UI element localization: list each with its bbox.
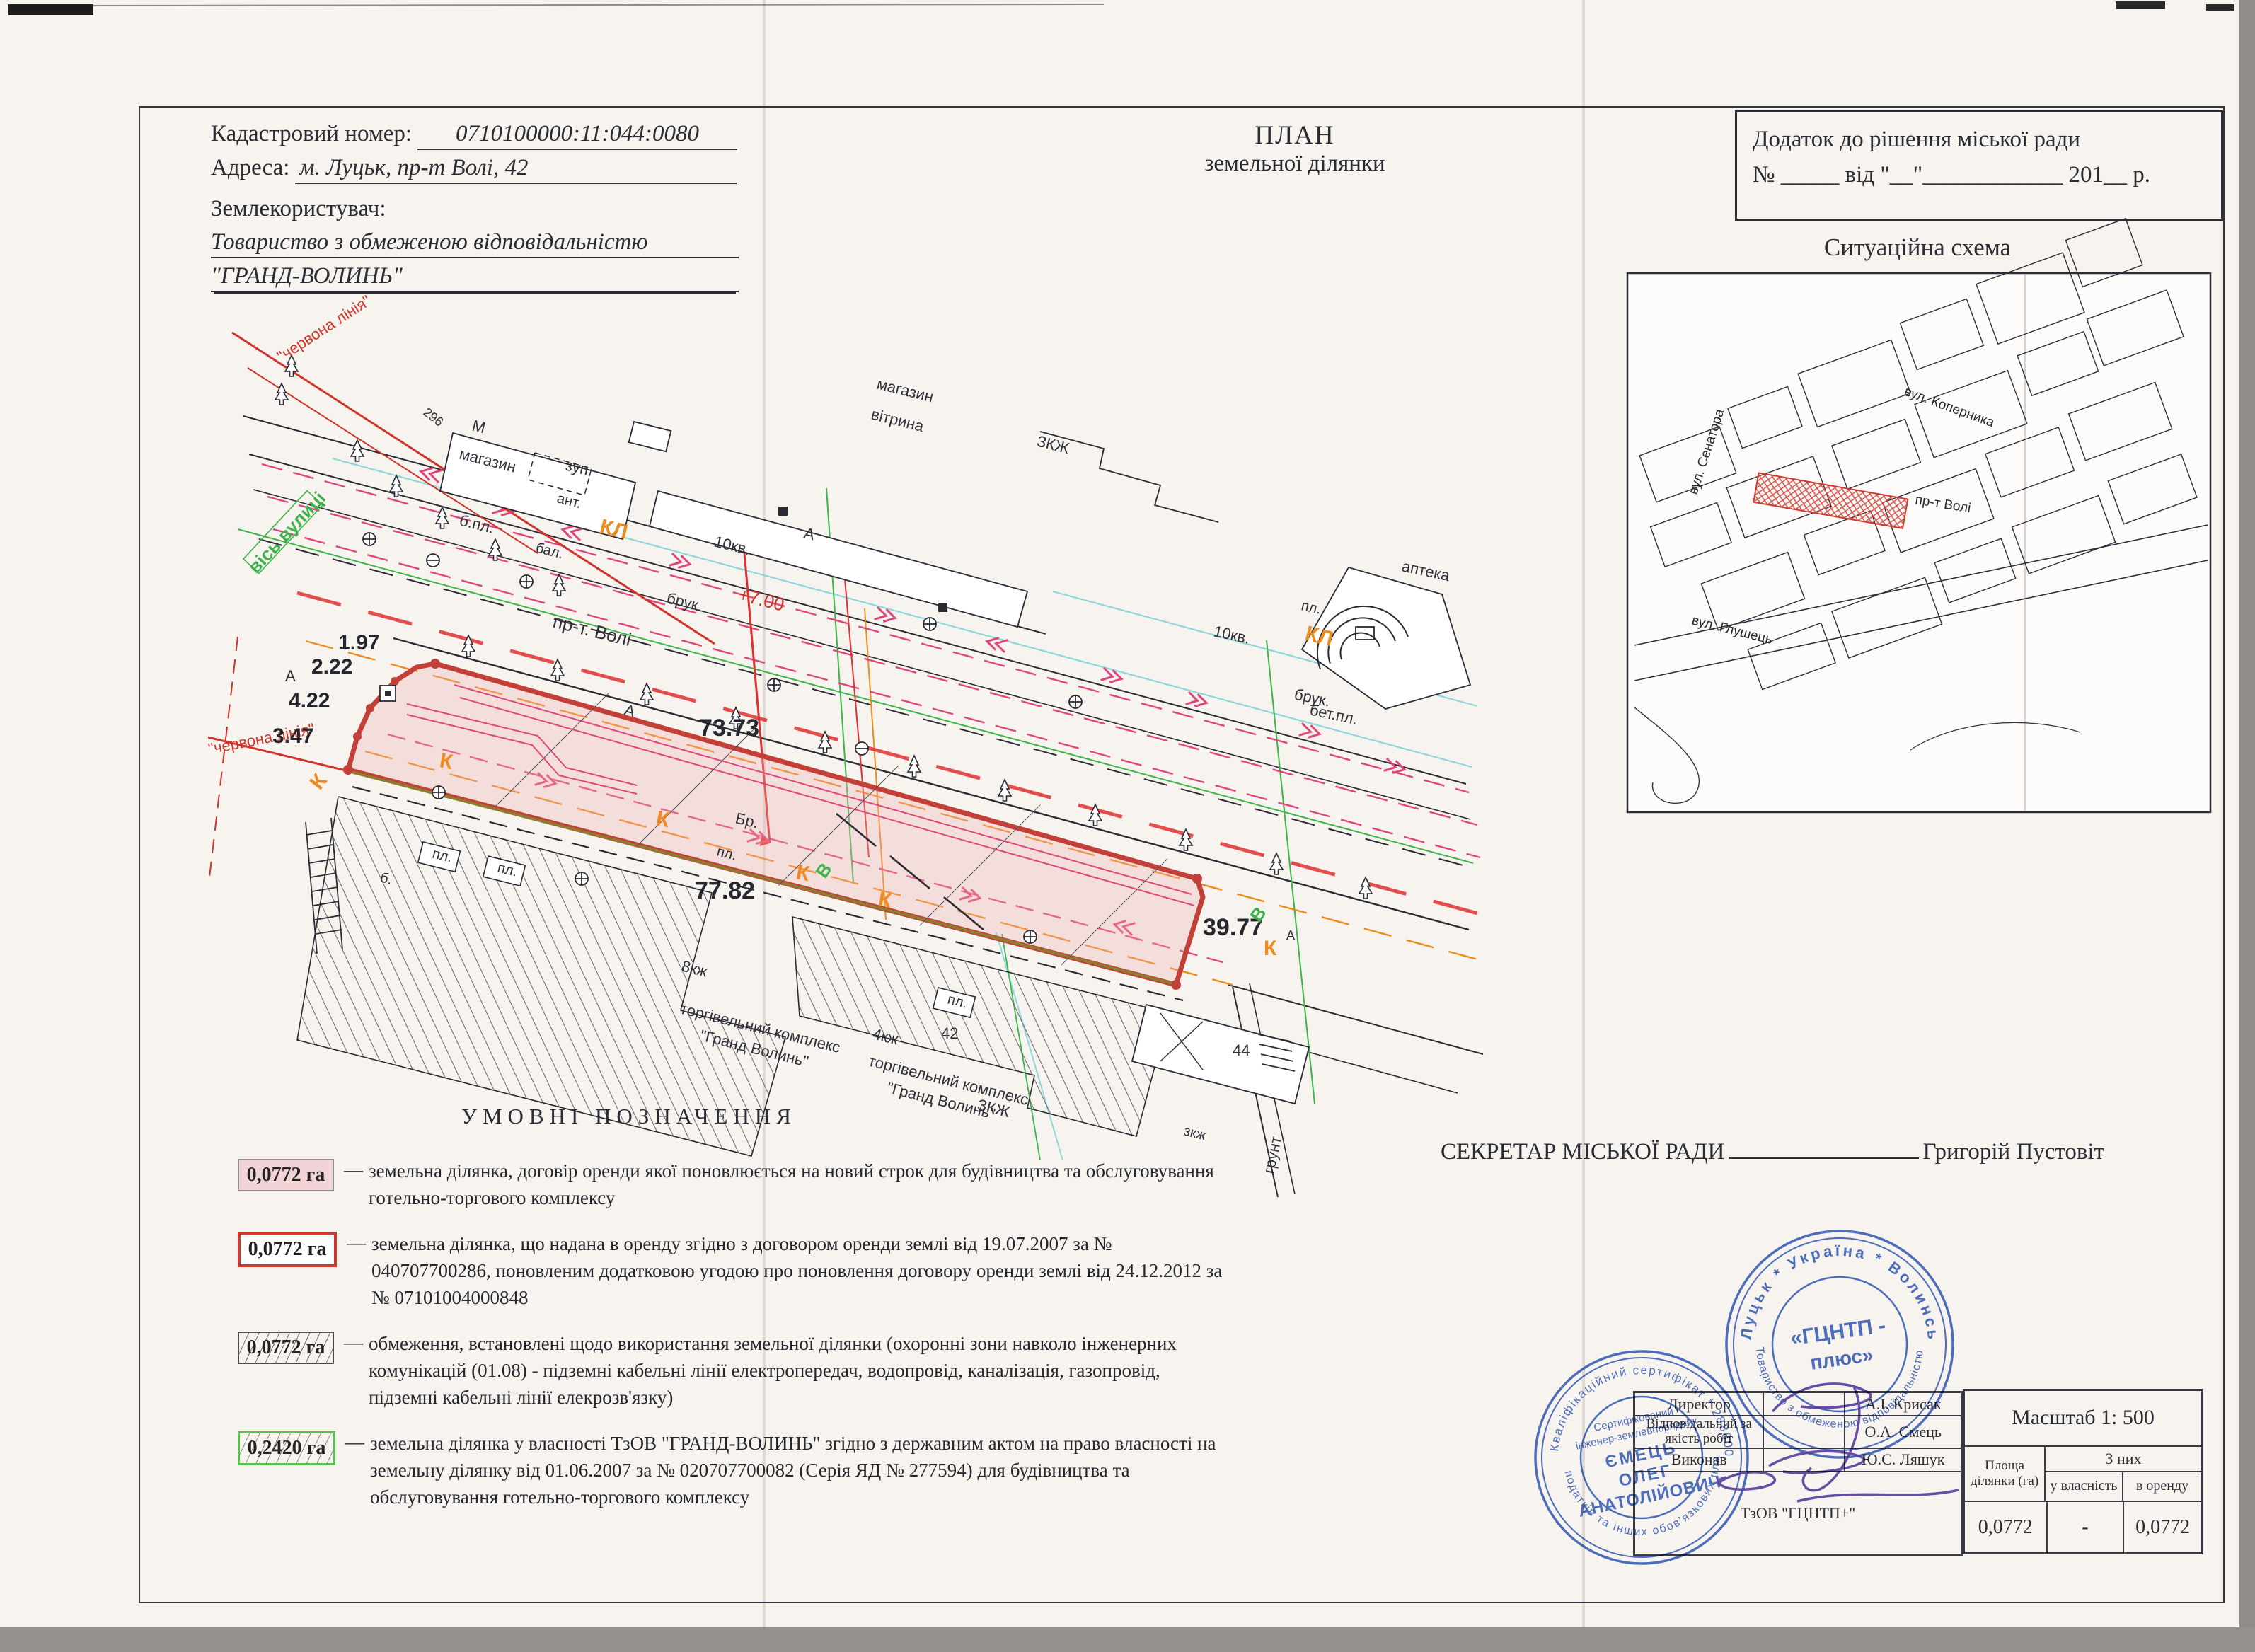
plan-label: ЗКЖ [1035, 432, 1072, 458]
plan-label: К [306, 769, 333, 794]
legend-entry: 0,0772 га — земельна ділянка, що надана … [238, 1230, 1271, 1312]
legend-dash: — [344, 1159, 363, 1181]
plan-label: А [1286, 928, 1295, 942]
exec-name: Ю.С. Ляшук [1845, 1448, 1961, 1472]
legend-entry: 0,0772 га — обмеження, встановлені щодо … [238, 1330, 1271, 1411]
landuser-line1: Товариство з обмеженою відповідальністю [211, 227, 739, 258]
legend-dash: — [345, 1431, 364, 1453]
plan-label: "червона лінія" [274, 291, 374, 365]
address-value: м. Луцьк, пр-т Волі, 42 [295, 153, 737, 184]
legend-text: обмеження, встановлені щодо використання… [369, 1330, 1225, 1411]
annex-box: Додаток до рішення міської ради № _____ … [1735, 110, 2223, 221]
plan-label: 10кв. [1212, 622, 1252, 647]
exec-signature-cell [1763, 1448, 1845, 1472]
plan-label: магазин [875, 375, 935, 406]
col-group-header: З них [2045, 1446, 2202, 1472]
plan-label: А [285, 667, 296, 685]
scale-value: Масштаб 1: 500 [1964, 1390, 2202, 1446]
legend-title: УМОВНІ ПОЗНАЧЕННЯ [461, 1104, 1271, 1129]
own-value: - [2047, 1501, 2124, 1553]
plan-label: вітрина [870, 405, 926, 436]
legend-entry: 0,0772 га — земельна ділянка, договір ор… [238, 1157, 1271, 1212]
scale-table: Масштаб 1: 500 Площа ділянки (га) З них … [1963, 1389, 2203, 1554]
signature-blank [1729, 1136, 1919, 1159]
plan-label: 42 [941, 1024, 958, 1042]
legend-swatch-green-hatched: 0,2420 га [238, 1431, 335, 1465]
legend: УМОВНІ ПОЗНАЧЕННЯ 0,0772 га — земельна д… [238, 1104, 1271, 1530]
dimension-label: 77.82 [695, 877, 755, 904]
plan-title: ПЛАН земельної ділянки [1132, 120, 1458, 177]
landuser-line2: "ГРАНД-ВОЛИНЬ" [211, 261, 739, 292]
plan-label: вісь вулиці [243, 487, 330, 577]
situation-map: вул. Коперника вул. Сенатора пр-т Волі в… [1607, 214, 2248, 812]
exec-signature-cell [1763, 1392, 1845, 1416]
plan-label: К [1264, 937, 1277, 960]
legend-text: земельна ділянка у власності ТзОВ "ГРАНД… [370, 1430, 1226, 1511]
exec-role: Відповідальний за якість робіт [1634, 1416, 1763, 1448]
dimension-label: 4.22 [289, 689, 330, 712]
legend-text: земельна ділянка, договір оренди якої по… [369, 1157, 1225, 1212]
area-value: 0,0772 [1964, 1501, 2047, 1553]
legend-swatch-red-border: 0,0772 га [238, 1232, 337, 1267]
plan-label: 44 [1233, 1041, 1250, 1059]
situation-title: Ситуаційна схема [1684, 233, 2151, 262]
secretary-title: СЕКРЕТАР МІСЬКОЇ РАДИ [1441, 1139, 1725, 1165]
exec-role: Директор [1634, 1392, 1763, 1416]
exec-name: А.І. Крисак [1845, 1392, 1961, 1416]
rent-value: 0,0772 [2123, 1501, 2202, 1553]
plan-label: +7.00 [737, 584, 787, 616]
col-own-header: у власність [2045, 1472, 2123, 1502]
col-area-header: Площа ділянки (га) [1964, 1446, 2045, 1502]
dimension-label: 1.97 [338, 631, 379, 654]
dimension-label: 3.47 [272, 724, 313, 748]
secretary-name: Григорій Пустовіт [1923, 1139, 2105, 1165]
executor-company: ТзОВ "ГЦНТП+" [1634, 1472, 1961, 1555]
plan-title-line1: ПЛАН [1132, 120, 1458, 151]
plan-title-line2: земельної ділянки [1132, 151, 1458, 177]
exec-name: О.А. Смець [1845, 1416, 1961, 1448]
address-label: Адреса: [211, 153, 289, 183]
plan-label: аптека [1400, 557, 1452, 584]
plan-label: пл. [1300, 598, 1322, 617]
legend-dash: — [347, 1232, 366, 1254]
legend-swatch-hatched: 0,0772 га [238, 1332, 334, 1364]
col-rent-header: в оренду [2123, 1472, 2202, 1502]
legend-text: земельна ділянка, що надана в оренду згі… [371, 1230, 1228, 1312]
exec-role: Виконав [1634, 1448, 1763, 1472]
legend-swatch-pink: 0,0772 га [238, 1159, 334, 1191]
legend-dash: — [344, 1332, 363, 1353]
cadastral-value: 0710100000:11:044:0080 [417, 119, 737, 150]
exec-signature-cell [1763, 1416, 1845, 1448]
landuser-label: Землекористувач: [211, 194, 386, 224]
scan-artifacts [8, 1, 2234, 15]
cadastral-label: Кадастровий номер: [211, 119, 412, 149]
dimension-label: 73.73 [699, 715, 759, 741]
annex-line1: Додаток до рішення міської ради [1753, 122, 2205, 158]
legend-entry: 0,2420 га — земельна ділянка у власності… [238, 1430, 1271, 1511]
plan-label: 296 [421, 405, 446, 429]
executors-table: Директор А.І. Крисак Відповідальний за я… [1633, 1391, 1963, 1556]
secretary-line: СЕКРЕТАР МІСЬКОЇ РАДИ Григорій Пустовіт [1441, 1136, 2219, 1165]
plan-label: М [471, 417, 488, 437]
header-left-block: Кадастровий номер: 0710100000:11:044:008… [211, 119, 742, 295]
plan-label: б.пл. [458, 512, 496, 537]
dimension-label: 2.22 [311, 655, 352, 678]
annex-line2: № _____ від "__"____________ 201__ р. [1753, 158, 2205, 193]
plan-label: брук. [665, 589, 705, 616]
